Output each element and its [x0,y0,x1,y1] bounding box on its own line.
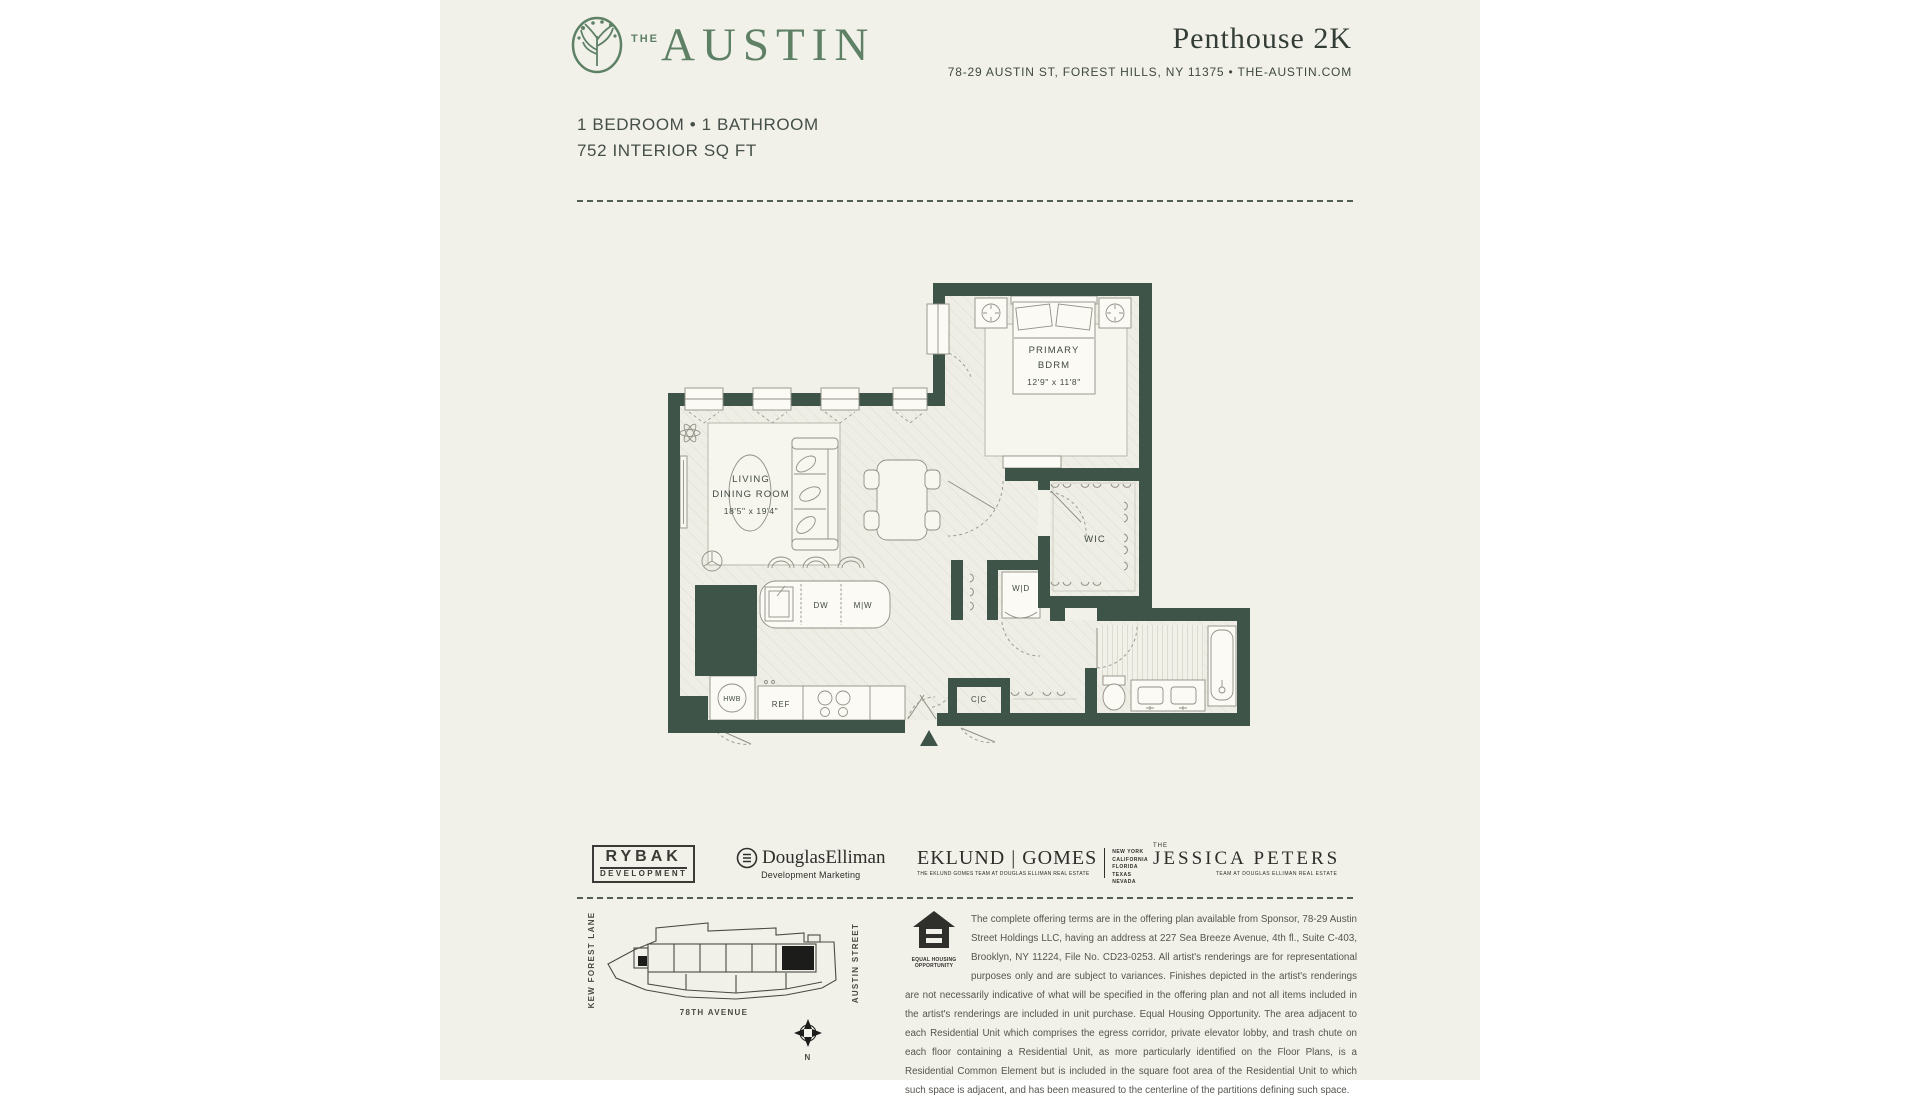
eg-region: NEW YORK [1112,849,1148,857]
eg-region: TEXAS [1112,872,1148,880]
equal-housing-logo: EQUAL HOUSING OPPORTUNITY [905,910,963,984]
de-tagline: Development Marketing [736,870,885,880]
specs-area: 752 INTERIOR SQ FT [577,138,819,164]
disclaimer-text: The complete offering terms are in the o… [905,914,1357,1096]
eg-divider [1104,848,1105,878]
microwave-label: M|W [854,601,873,610]
title-block: Penthouse 2K 78-29 AUSTIN ST, FOREST HIL… [948,22,1352,79]
primary-bedroom-label-2: BDRM [1038,360,1070,371]
living-dining-label-2: DINING ROOM [712,489,790,500]
de-monogram-icon [736,847,758,869]
eg-name: EKLUND | GOMES [917,848,1097,868]
coat-closet-label: C|C [971,695,987,704]
jp-tagline: TEAM AT DOUGLAS ELLIMAN REAL ESTATE [1153,871,1340,877]
highlighted-unit [782,946,814,970]
compass-icon [794,1019,822,1047]
street-bottom-label: 78TH AVENUE [680,1008,749,1017]
brand-the: THE [631,33,659,45]
unit-specs: 1 BEDROOM • 1 BATHROOM 752 INTERIOR SQ F… [577,112,819,165]
street-right-label: AUSTIN STREET [851,923,860,1003]
eho-icon [912,910,956,950]
eg-regions: NEW YORK CALIFORNIA FLORIDA TEXAS NEVADA [1112,848,1148,887]
primary-bedroom-label-1: PRIMARY [1029,345,1080,356]
rybak-logo: RYBAK DEVELOPMENT [592,845,695,883]
flyer-canvas: { "header": { "brand_the": "THE", "brand… [0,0,1920,1080]
hwb-label: HWB [723,696,741,703]
jessica-peters-logo: THE JESSICA PETERS TEAM AT DOUGLAS ELLIM… [1153,843,1340,877]
wic-label: WIC [1084,534,1106,545]
refrigerator-label: REF [772,700,790,709]
eg-region: CALIFORNIA [1112,857,1148,865]
divider-top [577,200,1353,202]
living-dining-dims: 18'5" x 19'4" [724,506,778,516]
eg-region: NEVADA [1112,879,1148,887]
compass-n-label: N [804,1053,811,1062]
site-map: KEW FOREST LANE AUSTIN STREET 78TH AVENU… [586,908,876,1068]
divider-bottom [577,897,1353,899]
tree-logo-icon [571,16,623,74]
washer-dryer-label: W|D [1012,584,1030,593]
flyer-page: THE AUSTIN Penthouse 2K 78-29 AUSTIN ST,… [440,0,1480,1080]
rybak-sub: DEVELOPMENT [600,867,687,878]
highlighted-core [638,956,647,966]
street-left-label: KEW FOREST LANE [587,912,596,1009]
de-name: DouglasElliman [762,847,885,869]
brand-logo: THE AUSTIN [571,16,875,74]
unit-title: Penthouse 2K [948,22,1352,56]
bathroom-fixtures [1098,625,1236,711]
eklund-gomes-logo: EKLUND | GOMES THE EKLUND GOMES TEAM AT … [917,848,1148,887]
legal-disclaimer: EQUAL HOUSING OPPORTUNITY The complete o… [905,910,1357,1100]
specs-rooms: 1 BEDROOM • 1 BATHROOM [577,112,819,138]
dishwasher-label: DW [814,601,829,610]
douglas-elliman-logo: DouglasElliman Development Marketing [736,847,885,880]
rybak-name: RYBAK [600,849,687,865]
eg-region: FLORIDA [1112,864,1148,872]
floor-plan: PRIMARY BDRM 12'9" x 11'8" LIVING DINING… [665,278,1255,758]
primary-bedroom-dims: 12'9" x 11'8" [1027,377,1081,387]
address-line: 78-29 AUSTIN ST, FOREST HILLS, NY 11375 … [948,65,1352,79]
floor-plan-drawing: PRIMARY BDRM 12'9" x 11'8" LIVING DINING… [665,278,1255,753]
site-map-drawing: KEW FOREST LANE AUSTIN STREET 78TH AVENU… [586,908,876,1063]
entry-marker-icon [920,730,938,746]
eho-caption: EQUAL HOUSING OPPORTUNITY [905,957,963,969]
living-dining-label-1: LIVING [732,474,770,485]
eg-tagline: THE EKLUND GOMES TEAM AT DOUGLAS ELLIMAN… [917,871,1097,877]
brand-name: AUSTIN [661,22,875,69]
jp-name: JESSICA PETERS [1153,849,1340,869]
